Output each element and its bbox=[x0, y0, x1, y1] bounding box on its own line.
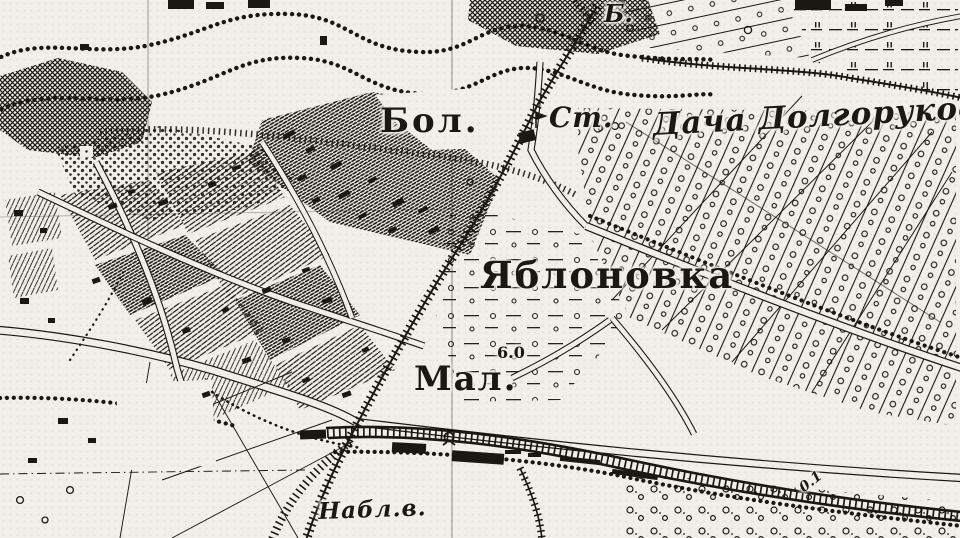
map-viewport[interactable]: Б.Бол.Ст.Дача ДолгоруковаЯблоновкаМал.6.… bbox=[0, 0, 960, 538]
map-canvas bbox=[0, 0, 960, 538]
